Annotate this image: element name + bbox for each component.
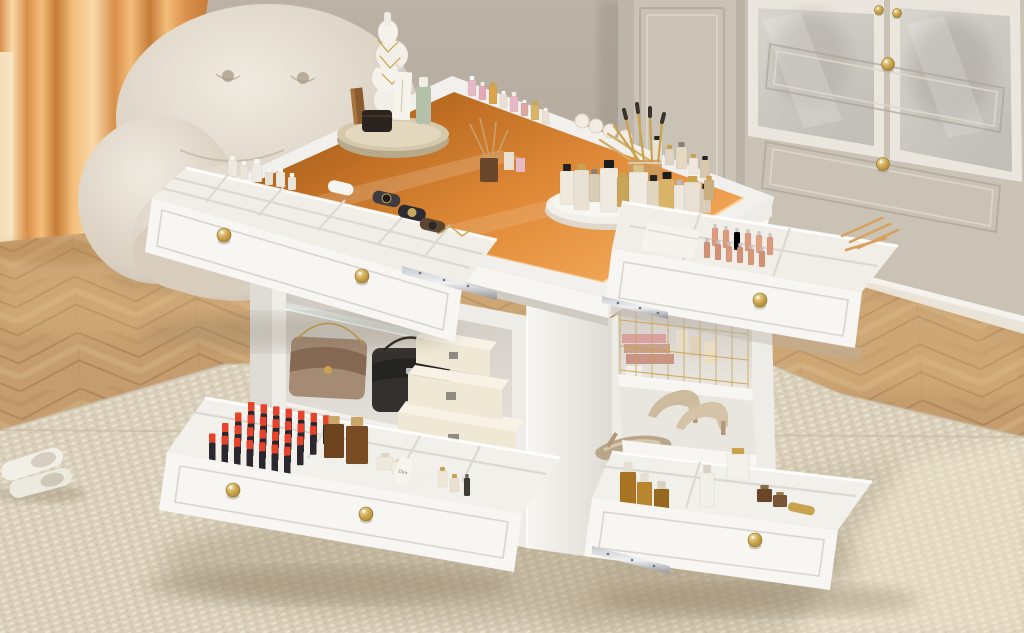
scene-canvas: Dior [0, 0, 1024, 633]
dressing-room-scene: Dior [0, 0, 1024, 633]
